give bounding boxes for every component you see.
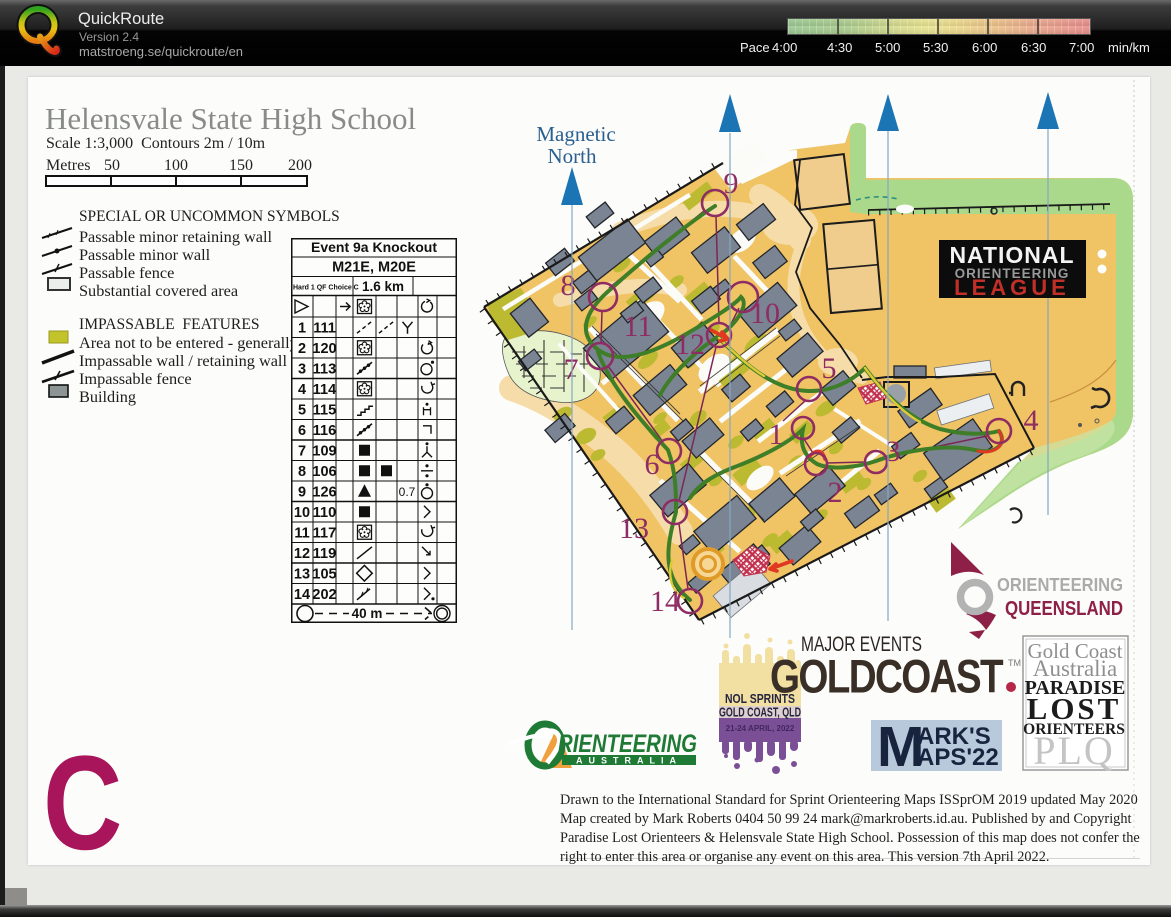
svg-text:Hard 1 QF Choice C: Hard 1 QF Choice C bbox=[293, 285, 359, 292]
svg-text:M21E, M20E: M21E, M20E bbox=[332, 260, 416, 276]
svg-text:6: 6 bbox=[645, 448, 660, 481]
svg-text:QUEENSLAND: QUEENSLAND bbox=[1005, 598, 1123, 620]
svg-text:1: 1 bbox=[298, 320, 306, 336]
svg-text:RIENTEERING: RIENTEERING bbox=[558, 730, 697, 758]
svg-text:120: 120 bbox=[312, 341, 336, 357]
svg-text:115: 115 bbox=[313, 402, 336, 418]
svg-text:114: 114 bbox=[313, 382, 336, 398]
svg-text:NATIONAL: NATIONAL bbox=[949, 242, 1074, 268]
svg-text:10: 10 bbox=[750, 297, 780, 330]
svg-text:40 m: 40 m bbox=[352, 606, 383, 621]
svg-text:LEAGUE: LEAGUE bbox=[954, 275, 1070, 300]
svg-text:APS'22: APS'22 bbox=[917, 744, 999, 771]
svg-text:GOLDCOAST: GOLDCOAST bbox=[770, 650, 1004, 703]
svg-text:8: 8 bbox=[298, 464, 306, 480]
svg-text:5: 5 bbox=[822, 352, 837, 385]
svg-text:11: 11 bbox=[294, 525, 309, 541]
svg-text:0.7: 0.7 bbox=[399, 485, 416, 499]
svg-text:6: 6 bbox=[298, 423, 306, 439]
svg-text:14: 14 bbox=[294, 587, 310, 603]
svg-text:Magnetic: Magnetic bbox=[536, 122, 615, 146]
svg-text:4: 4 bbox=[1024, 404, 1039, 437]
svg-text:13: 13 bbox=[294, 566, 310, 582]
svg-text:111: 111 bbox=[313, 320, 336, 336]
svg-text:10: 10 bbox=[294, 505, 310, 521]
svg-text:2: 2 bbox=[828, 476, 843, 509]
svg-text:3: 3 bbox=[298, 361, 306, 377]
svg-text:12: 12 bbox=[675, 328, 705, 361]
svg-text:North: North bbox=[548, 144, 597, 168]
svg-text:109: 109 bbox=[312, 443, 336, 459]
svg-text:9: 9 bbox=[298, 484, 306, 500]
svg-text:105: 105 bbox=[312, 566, 336, 582]
svg-text:TM: TM bbox=[1008, 658, 1021, 668]
svg-text:7: 7 bbox=[298, 443, 306, 459]
svg-text:113: 113 bbox=[313, 361, 336, 377]
svg-text:9: 9 bbox=[724, 167, 739, 200]
svg-text:GOLD COAST, QLD: GOLD COAST, QLD bbox=[719, 705, 801, 720]
svg-text:119: 119 bbox=[313, 546, 336, 562]
svg-text:5: 5 bbox=[298, 402, 306, 418]
svg-text:126: 126 bbox=[312, 484, 336, 500]
svg-text:ORIENTEERING: ORIENTEERING bbox=[997, 575, 1123, 595]
svg-text:11: 11 bbox=[624, 310, 653, 343]
svg-text:1: 1 bbox=[769, 418, 784, 451]
svg-text:21-24 APRIL, 2022: 21-24 APRIL, 2022 bbox=[726, 724, 795, 733]
svg-text:AUSTRALIA: AUSTRALIA bbox=[576, 756, 682, 766]
svg-text:110: 110 bbox=[313, 505, 336, 521]
svg-text:202: 202 bbox=[312, 587, 336, 603]
svg-text:7: 7 bbox=[564, 353, 579, 386]
svg-text:117: 117 bbox=[313, 525, 336, 541]
svg-text:116: 116 bbox=[313, 423, 336, 439]
svg-text:PLQ: PLQ bbox=[1033, 728, 1115, 773]
svg-text:106: 106 bbox=[312, 464, 336, 480]
svg-text:Event 9a Knockout: Event 9a Knockout bbox=[311, 239, 437, 255]
svg-text:1.6 km: 1.6 km bbox=[362, 279, 404, 294]
svg-text:8: 8 bbox=[561, 269, 576, 302]
svg-text:12: 12 bbox=[294, 546, 310, 562]
svg-text:4: 4 bbox=[298, 382, 306, 398]
svg-text:2: 2 bbox=[298, 341, 306, 357]
